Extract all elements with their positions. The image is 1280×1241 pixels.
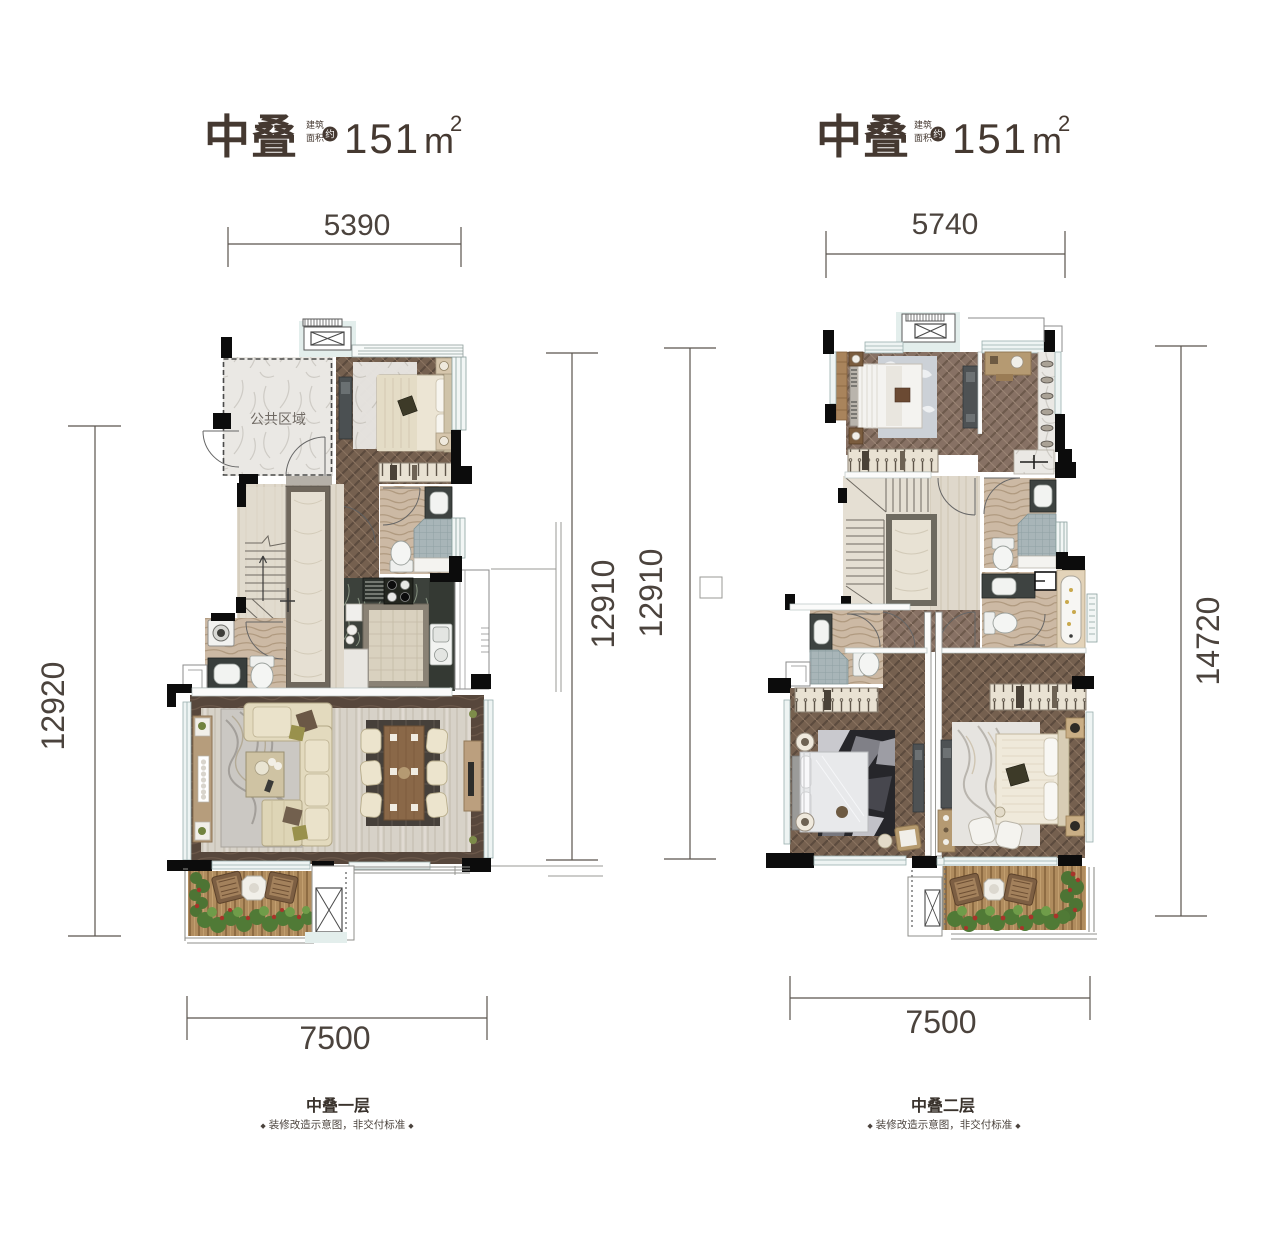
svg-text:5740: 5740 (912, 208, 979, 241)
svg-text:建筑: 建筑 (914, 119, 932, 130)
svg-text:◆装修改造示意图，非交付标准◆: ◆装修改造示意图，非交付标准◆ (260, 1118, 414, 1131)
svg-text:14720: 14720 (1190, 597, 1226, 686)
svg-text:约: 约 (325, 129, 335, 141)
svg-text:约: 约 (933, 129, 943, 141)
svg-text:中叠二层: 中叠二层 (911, 1096, 975, 1115)
svg-text:2: 2 (1058, 111, 1070, 136)
svg-text:7500: 7500 (299, 1020, 370, 1056)
svg-text:面积: 面积 (306, 132, 324, 143)
svg-text:中叠: 中叠 (816, 111, 910, 163)
svg-text:5390: 5390 (324, 209, 391, 242)
svg-text:中叠: 中叠 (204, 111, 298, 163)
svg-text:151: 151 (952, 115, 1028, 162)
svg-text:7500: 7500 (905, 1004, 976, 1040)
svg-text:中叠一层: 中叠一层 (306, 1096, 370, 1115)
svg-text:◆装修改造示意图，非交付标准◆: ◆装修改造示意图，非交付标准◆ (867, 1118, 1021, 1131)
svg-text:面积: 面积 (914, 132, 932, 143)
svg-text:建筑: 建筑 (306, 119, 324, 130)
svg-text:151: 151 (344, 115, 420, 162)
svg-text:12910: 12910 (633, 549, 669, 638)
svg-text:12920: 12920 (35, 662, 71, 751)
svg-text:2: 2 (450, 111, 462, 136)
svg-text:12910: 12910 (585, 560, 621, 649)
svg-text:公共区域: 公共区域 (250, 411, 306, 427)
